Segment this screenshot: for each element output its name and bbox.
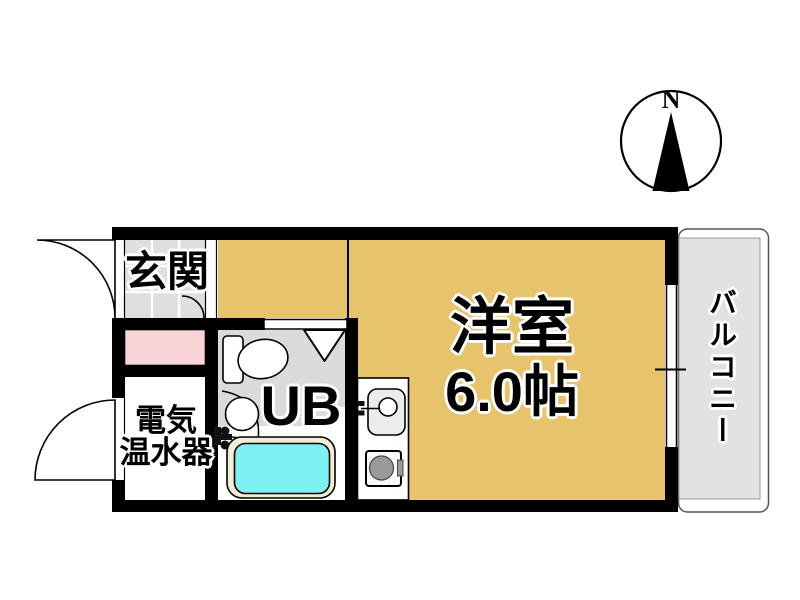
living-room-label: 洋室 6.0帖 bbox=[445, 296, 579, 424]
balcony-label: バルコニー bbox=[707, 288, 735, 448]
heater-door-swing-icon bbox=[35, 400, 115, 480]
entrance-door-swing-icon bbox=[37, 240, 115, 318]
genkan-label: 玄関 bbox=[125, 251, 209, 293]
living-room-name: 洋室 bbox=[445, 296, 579, 360]
closet-block bbox=[125, 330, 205, 365]
unit-bath-label: UB bbox=[261, 378, 342, 434]
floor-plan: 玄関 洋室 6.0帖 UB 電気 温水器 バルコニー N bbox=[0, 0, 800, 600]
compass-north-label: N bbox=[662, 87, 681, 113]
bathtub-icon bbox=[227, 437, 335, 498]
stove-icon bbox=[366, 451, 403, 486]
water-heater-label: 電気 温水器 bbox=[120, 405, 213, 469]
ub-doorway-opening bbox=[264, 320, 347, 330]
living-room-size: 6.0帖 bbox=[445, 360, 579, 424]
water-heater-line2: 温水器 bbox=[120, 437, 213, 469]
water-heater-line1: 電気 bbox=[120, 405, 213, 437]
